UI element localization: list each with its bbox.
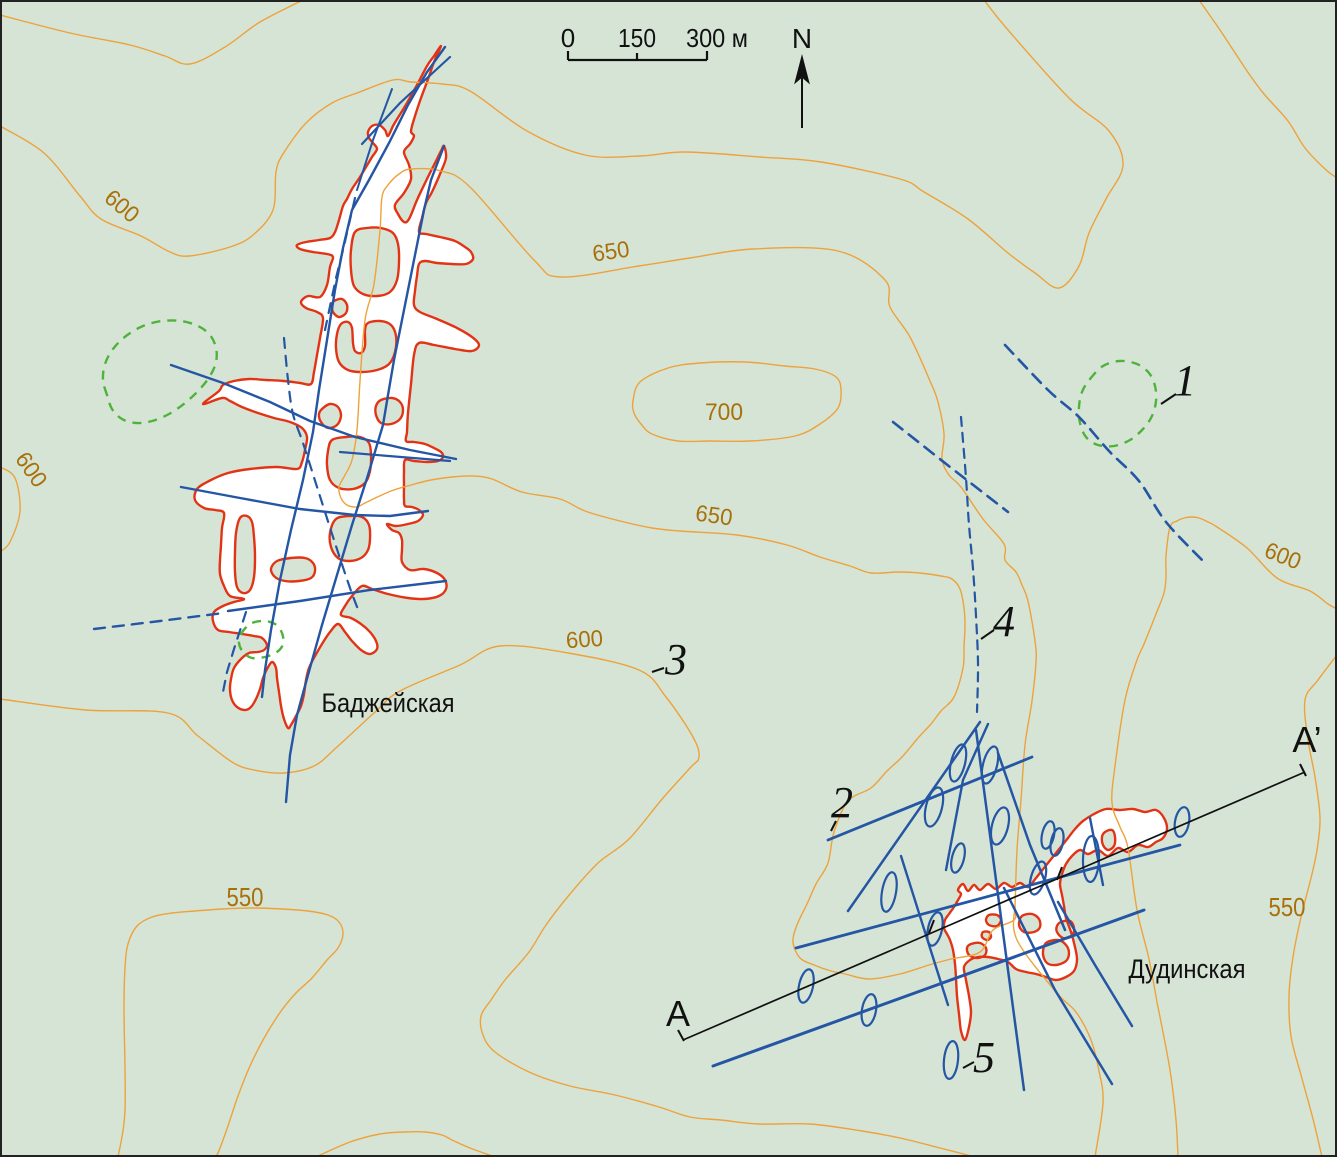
svg-text:700: 700 [705, 399, 743, 426]
svg-text:4: 4 [993, 597, 1015, 646]
svg-text:5: 5 [973, 1033, 995, 1082]
svg-text:N: N [792, 23, 812, 54]
svg-text:3: 3 [664, 635, 687, 684]
svg-text:A’: A’ [1292, 719, 1321, 760]
svg-text:Баджейская: Баджейская [322, 688, 455, 718]
svg-text:550: 550 [227, 882, 264, 912]
svg-text:Дудинская: Дудинская [1129, 954, 1246, 984]
svg-text:1: 1 [1174, 356, 1196, 405]
svg-text:150: 150 [618, 23, 656, 53]
svg-text:600: 600 [565, 625, 604, 654]
svg-text:300 м: 300 м [686, 23, 748, 53]
svg-text:650: 650 [591, 236, 631, 267]
svg-text:550: 550 [1269, 892, 1306, 922]
svg-text:650: 650 [694, 500, 734, 531]
svg-text:А: А [666, 993, 690, 1034]
svg-text:2: 2 [831, 778, 853, 827]
svg-text:0: 0 [561, 23, 575, 53]
